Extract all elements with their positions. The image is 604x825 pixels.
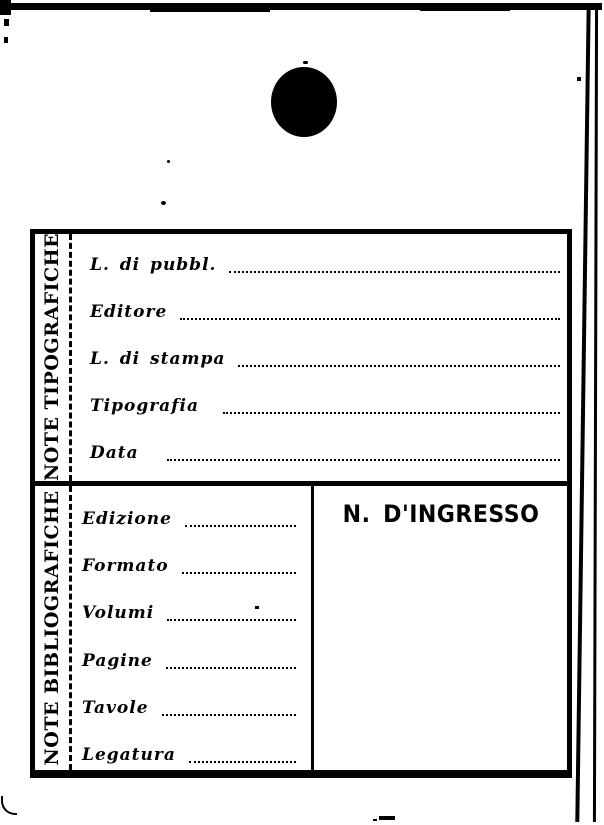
sidebar-divider-upper [69,234,72,481]
section-label-note-bibliografiche: NOTE BIBLIOGRAFICHE [41,490,63,765]
scan-top-edge-irregularity [150,9,270,12]
field-line-dotted [182,572,296,574]
field-label: Tavole [82,700,149,719]
scan-corner-blob [0,0,11,15]
field-label: Tipografia [90,398,199,417]
ingresso-divider-line [311,486,314,770]
scan-top-edge [6,3,602,10]
field-line-dotted [180,318,560,320]
field-row-tavole: Tavole [82,693,296,719]
field-line-dotted [223,412,560,414]
field-row-l-di-pubbl: L. di pubbl. [90,250,560,276]
ingresso-title: N. D'INGRESSO [324,500,558,528]
field-row-l-di-stampa: L. di stampa [90,344,560,370]
field-row-editore: Editore [90,297,560,323]
scan-bottom-left-hook [1,796,17,815]
field-label: L. di pubbl. [90,257,216,276]
scan-speck [167,160,170,163]
field-line-dotted [229,271,560,273]
scanned-library-card: NOTE TIPOGRAFICHE NOTE BIBLIOGRAFICHE L.… [0,0,604,825]
section-divider-line [30,481,572,486]
punch-hole-mark [271,67,337,137]
field-label: L. di stampa [90,351,225,370]
field-row-legatura: Legatura [82,740,296,766]
scan-bottom-speck [373,819,377,821]
field-label: Editore [90,304,167,323]
field-label: Data [90,445,139,464]
scan-speck [303,61,308,64]
scan-left-mark [4,19,9,26]
field-row-formato: Formato [82,551,296,577]
field-line-dotted [238,365,560,367]
scan-bottom-dash [379,816,395,820]
section-label-note-tipografiche: NOTE TIPOGRAFICHE [41,233,63,481]
table-border-right [567,229,572,778]
field-line-dotted [166,667,296,669]
field-row-volumi: Volumi [82,598,296,624]
field-label: Legatura [82,747,176,766]
field-line-dotted [185,525,296,527]
field-row-pagine: Pagine [82,646,296,672]
sidebar-divider-lower [69,486,72,770]
table-border-left [30,229,35,778]
scan-right-edge-line [575,4,590,822]
field-row-data: Data [90,438,560,464]
field-row-edizione: Edizione [82,504,296,530]
scan-right-edge-line [593,4,598,822]
scan-speck [577,77,581,81]
scan-left-mark [4,37,8,43]
field-label: Formato [82,558,169,577]
field-line-dotted [167,459,560,461]
table-border-top [30,229,572,234]
scan-speck [161,201,166,205]
field-label: Pagine [82,653,153,672]
table-border-bottom [30,770,572,778]
field-line-dotted [189,761,296,763]
field-row-tipografia: Tipografia [90,391,560,417]
field-label: Volumi [82,605,154,624]
scan-top-edge-irregularity [420,9,510,11]
field-label: Edizione [82,511,172,530]
field-line-dotted [162,714,296,716]
field-line-dotted [167,619,296,621]
